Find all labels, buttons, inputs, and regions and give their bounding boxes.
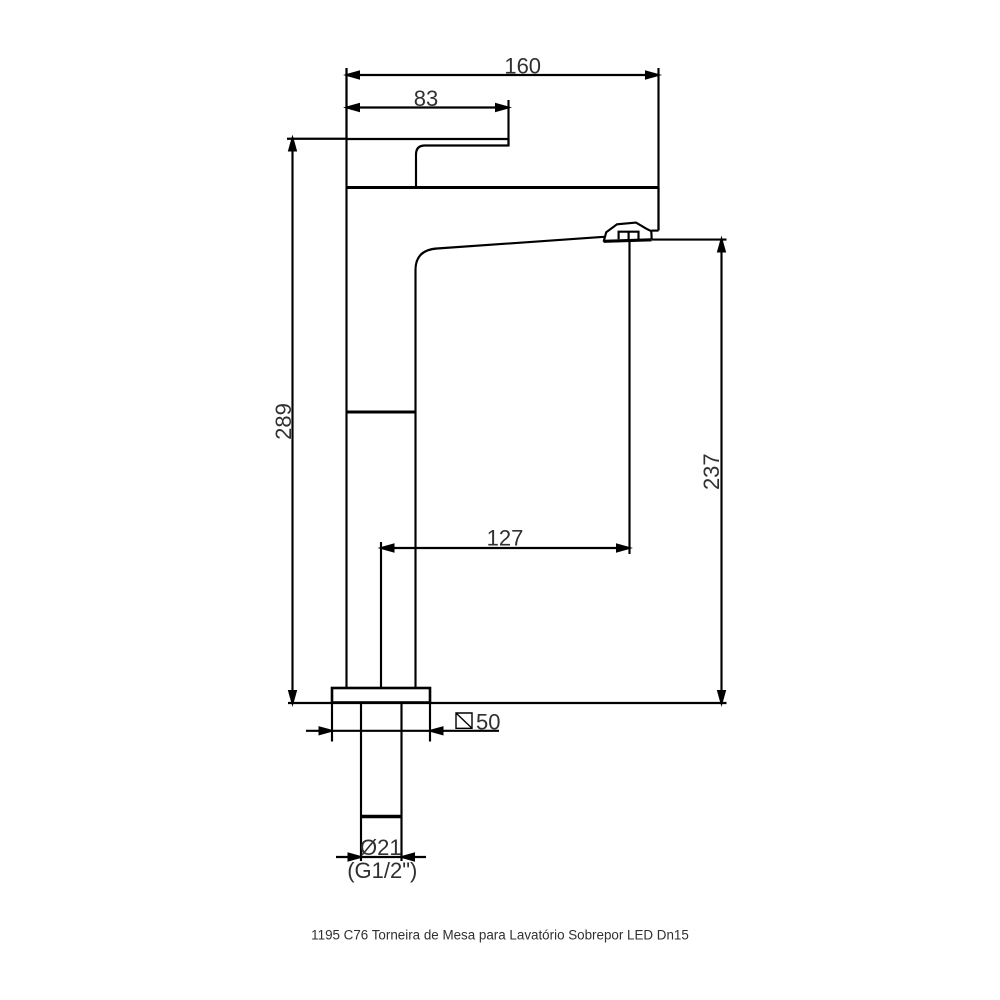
svg-text:237: 237	[699, 453, 724, 490]
svg-text:1195 C76 Torneira de Mesa para: 1195 C76 Torneira de Mesa para Lavatório…	[311, 928, 689, 943]
svg-text:160: 160	[504, 54, 541, 79]
svg-text:(G1/2"): (G1/2")	[347, 858, 417, 883]
svg-text:50: 50	[476, 710, 500, 735]
svg-text:Ø21: Ø21	[360, 835, 402, 860]
svg-text:127: 127	[487, 526, 524, 551]
svg-text:83: 83	[414, 86, 438, 111]
svg-text:289: 289	[271, 403, 296, 440]
